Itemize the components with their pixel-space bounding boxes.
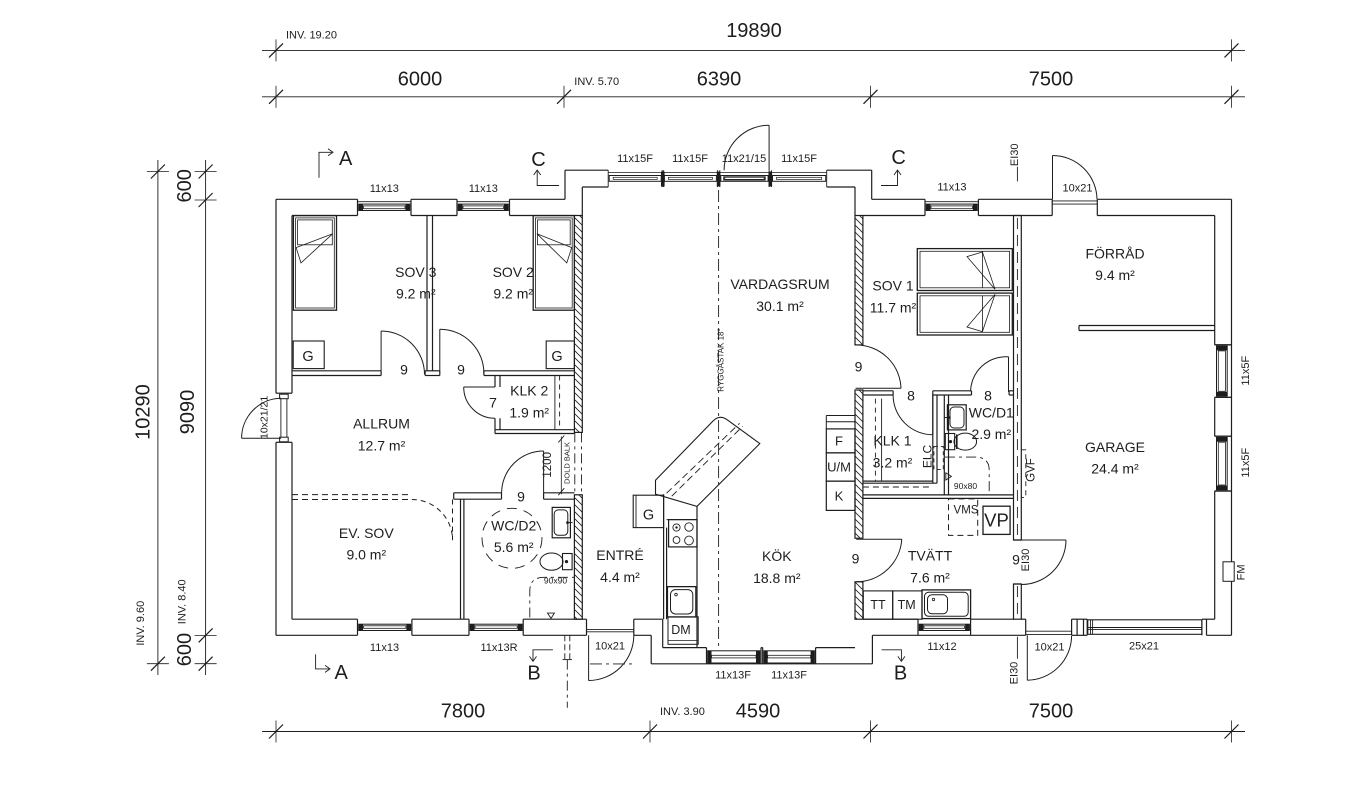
svg-text:7: 7 (489, 395, 497, 411)
svg-text:EI30: EI30 (1009, 662, 1021, 685)
svg-text:11x13: 11x13 (370, 642, 399, 654)
svg-text:INV. 5.70: INV. 5.70 (574, 76, 619, 88)
svg-text:9.0 m²: 9.0 m² (346, 547, 386, 563)
svg-text:11x21/15: 11x21/15 (722, 153, 766, 165)
svg-text:600: 600 (174, 633, 196, 666)
svg-text:8: 8 (907, 388, 915, 404)
svg-text:9.2 m²: 9.2 m² (396, 286, 436, 302)
svg-text:11.7 m²: 11.7 m² (870, 299, 917, 315)
svg-text:10x21: 10x21 (1035, 642, 1065, 654)
svg-text:11x13: 11x13 (469, 183, 498, 195)
svg-text:FÖRRÅD: FÖRRÅD (1085, 244, 1144, 261)
svg-text:10x21/21: 10x21/21 (259, 396, 271, 439)
svg-text:11x5F: 11x5F (1240, 448, 1252, 478)
svg-text:8: 8 (984, 388, 992, 404)
svg-text:90x90: 90x90 (544, 576, 567, 586)
svg-text:KLK 2: KLK 2 (510, 383, 548, 399)
svg-text:90x80: 90x80 (954, 481, 977, 491)
svg-text:GVF: GVF (1026, 458, 1038, 482)
svg-text:EI30: EI30 (1009, 143, 1021, 166)
svg-text:VP: VP (984, 509, 1009, 530)
svg-text:WC/D1: WC/D1 (969, 404, 1014, 420)
svg-text:INV. 9.60: INV. 9.60 (135, 601, 147, 646)
svg-text:DM: DM (671, 623, 690, 637)
svg-text:9.2 m²: 9.2 m² (493, 286, 533, 302)
svg-text:TVÄTT: TVÄTT (908, 548, 953, 564)
svg-text:10290: 10290 (132, 384, 154, 440)
svg-text:A: A (339, 148, 353, 170)
svg-text:6390: 6390 (697, 68, 742, 90)
svg-text:10x21: 10x21 (595, 641, 625, 653)
svg-text:FM: FM (1235, 564, 1247, 580)
svg-text:SOV 3: SOV 3 (395, 264, 436, 280)
svg-text:GARAGE: GARAGE (1085, 439, 1145, 455)
svg-text:G: G (643, 508, 654, 524)
svg-text:25x21: 25x21 (1129, 641, 1159, 653)
svg-text:19890: 19890 (726, 20, 782, 42)
svg-text:EV. SOV: EV. SOV (339, 525, 394, 541)
svg-text:5.6 m²: 5.6 m² (494, 539, 534, 555)
svg-text:C: C (531, 149, 545, 171)
svg-text:VMS: VMS (954, 504, 979, 516)
svg-text:18.8 m²: 18.8 m² (753, 570, 801, 586)
svg-text:INV. 8.40: INV. 8.40 (176, 579, 188, 624)
svg-text:1.9 m²: 1.9 m² (509, 404, 549, 420)
svg-text:11x13F: 11x13F (715, 670, 751, 682)
svg-text:ELC: ELC (921, 444, 935, 468)
svg-text:TM: TM (898, 598, 916, 612)
svg-text:9: 9 (852, 551, 860, 567)
svg-text:7500: 7500 (1029, 68, 1074, 90)
svg-text:11x13R: 11x13R (480, 642, 517, 654)
svg-text:9: 9 (400, 361, 408, 377)
svg-text:11x13F: 11x13F (771, 670, 807, 682)
svg-text:11x5F: 11x5F (1240, 356, 1252, 386)
svg-text:ALLRUM: ALLRUM (353, 416, 410, 432)
svg-text:30.1 m²: 30.1 m² (756, 298, 804, 314)
svg-text:SOV 1: SOV 1 (872, 278, 913, 294)
svg-text:6000: 6000 (398, 68, 443, 90)
svg-text:7800: 7800 (441, 701, 486, 723)
svg-text:11x13: 11x13 (370, 183, 399, 195)
svg-text:KLK 1: KLK 1 (873, 433, 911, 449)
svg-text:VARDAGSRUM: VARDAGSRUM (730, 276, 829, 292)
svg-text:WC/D2: WC/D2 (491, 517, 536, 533)
svg-text:9.4 m²: 9.4 m² (1095, 267, 1135, 283)
svg-text:11x12: 11x12 (927, 641, 956, 653)
svg-text:EI30: EI30 (1020, 549, 1032, 572)
svg-text:9090: 9090 (177, 390, 199, 435)
svg-text:9: 9 (457, 361, 465, 377)
svg-text:12.7 m²: 12.7 m² (358, 437, 406, 453)
svg-text:24.4 m²: 24.4 m² (1091, 461, 1139, 477)
svg-text:KÖK: KÖK (762, 547, 792, 564)
svg-text:C: C (891, 147, 905, 169)
svg-text:9: 9 (517, 489, 525, 505)
svg-text:RYGGÅSTAK 18°: RYGGÅSTAK 18° (717, 328, 726, 391)
svg-text:ENTRÉ: ENTRÉ (596, 547, 643, 563)
svg-text:G: G (551, 349, 562, 365)
svg-text:DOLD BALK: DOLD BALK (563, 442, 572, 484)
svg-text:600: 600 (174, 169, 196, 202)
svg-text:G: G (302, 349, 313, 365)
svg-text:11x15F: 11x15F (672, 153, 708, 165)
svg-text:U/M: U/M (827, 460, 851, 475)
svg-text:2.9 m²: 2.9 m² (971, 426, 1011, 442)
svg-text:SOV 2: SOV 2 (493, 264, 534, 280)
svg-text:11x13: 11x13 (937, 182, 966, 194)
svg-text:B: B (894, 663, 907, 685)
svg-text:B: B (527, 663, 540, 685)
svg-text:4.4 m²: 4.4 m² (600, 569, 640, 585)
svg-text:1200: 1200 (542, 452, 554, 478)
svg-text:11x15F: 11x15F (617, 153, 653, 165)
svg-text:4590: 4590 (736, 701, 781, 723)
svg-text:9: 9 (855, 359, 863, 375)
svg-text:9: 9 (1012, 552, 1020, 568)
svg-text:A: A (335, 662, 349, 684)
svg-text:7500: 7500 (1029, 701, 1074, 723)
svg-text:7.6 m²: 7.6 m² (910, 569, 950, 585)
svg-text:F: F (835, 434, 843, 449)
svg-text:TT: TT (870, 598, 886, 612)
svg-text:INV. 19.20: INV. 19.20 (286, 30, 337, 42)
svg-text:10x21: 10x21 (1063, 183, 1093, 195)
svg-text:3.2 m²: 3.2 m² (873, 454, 913, 470)
svg-text:11x15F: 11x15F (781, 153, 817, 165)
svg-text:K: K (835, 488, 844, 503)
svg-text:INV. 3.90: INV. 3.90 (660, 706, 705, 718)
